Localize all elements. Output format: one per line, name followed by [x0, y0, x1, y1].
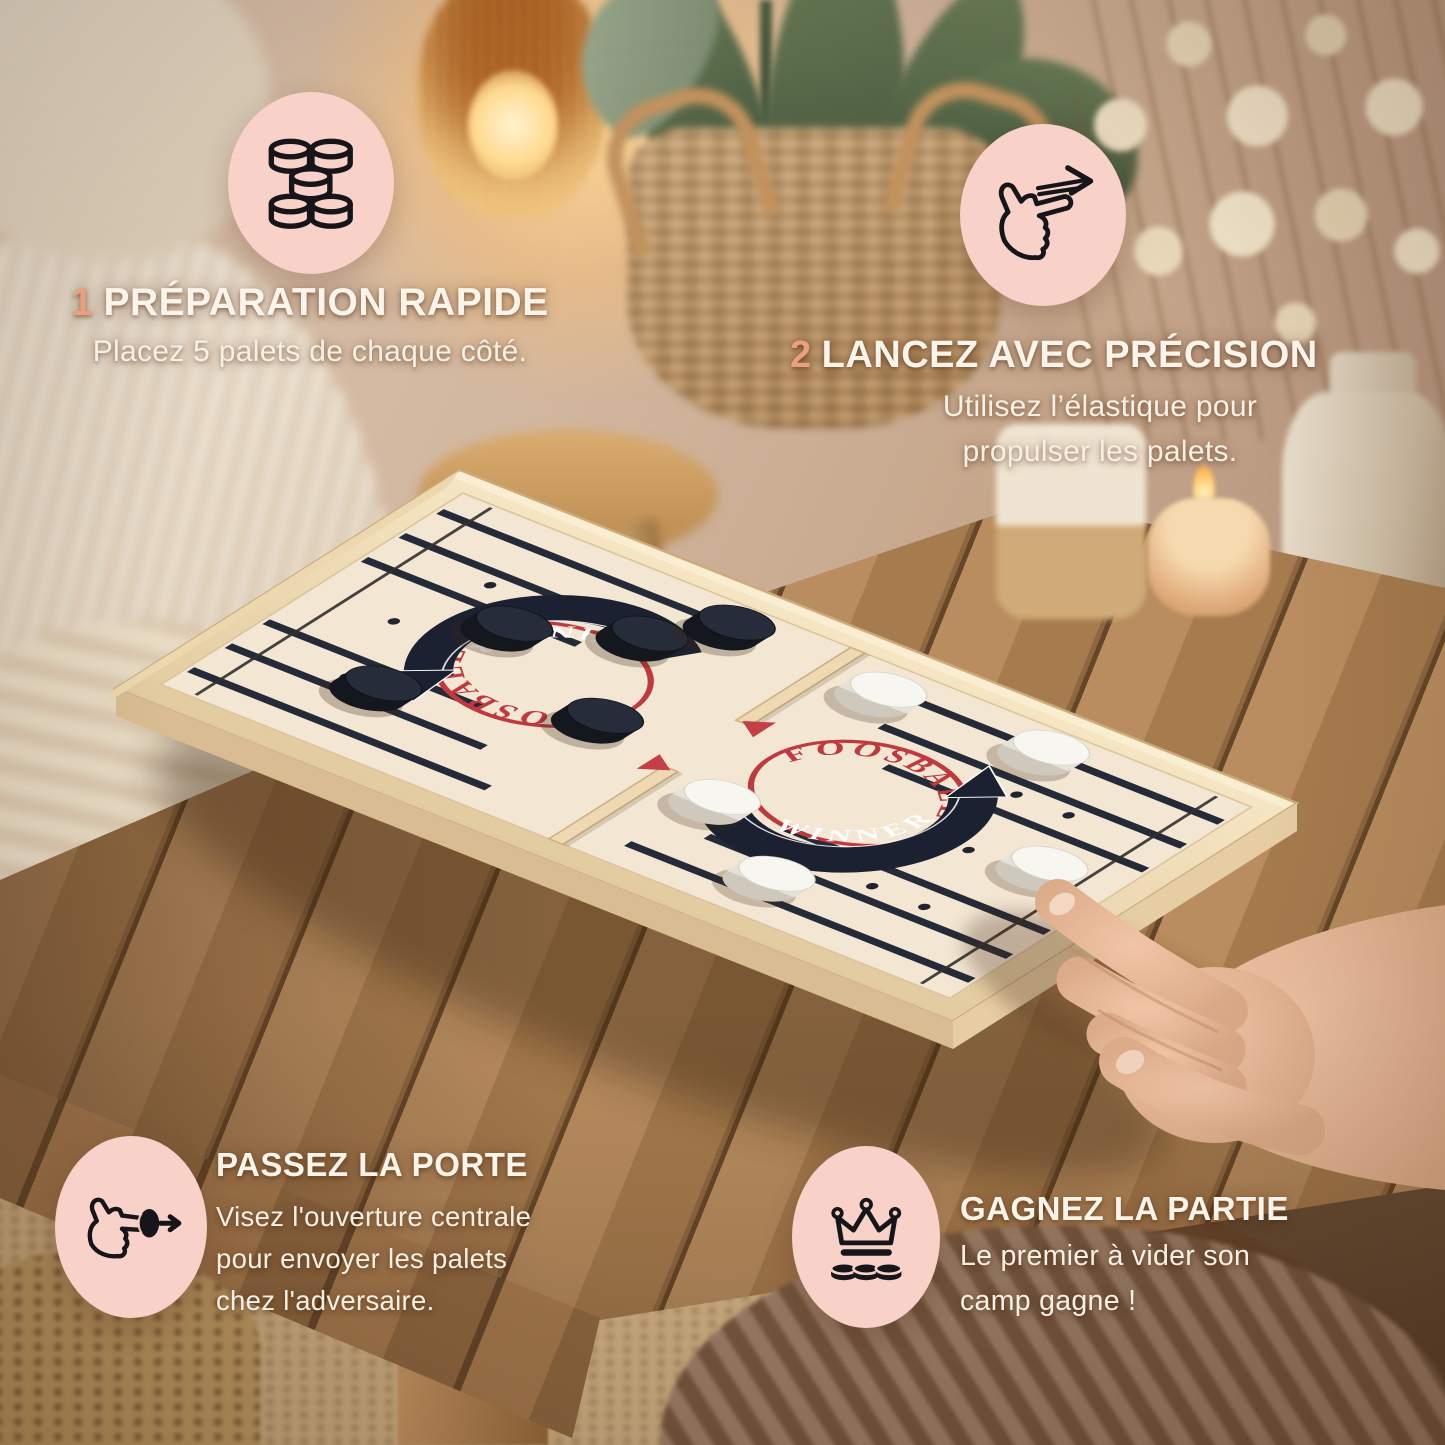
- callout-prep-title: 1PRÉPARATION RAPIDE: [35, 281, 585, 325]
- callout-launch-circle: [960, 124, 1126, 306]
- product-infographic: FOOSBALL WINNER FOOSBALL WINNER: [0, 0, 1445, 1445]
- callout-win-title: GAGNEZ LA PARTIE: [960, 1190, 1289, 1228]
- pucks-stack-icon: [251, 117, 371, 248]
- crown-pucks-icon: [813, 1171, 920, 1302]
- step-number: 2: [790, 334, 812, 376]
- callout-win-body: Le premier à vider son camp gagne !: [960, 1234, 1250, 1324]
- callout-prep-circle: [228, 92, 394, 274]
- flick-hand-icon: [983, 149, 1103, 280]
- callout-gate-circle: [55, 1136, 207, 1318]
- callout-launch-title: 2LANCEZ AVEC PRÉCISION: [790, 334, 1290, 377]
- callout-gate-body: Visez l'ouverture centrale pour envoyer …: [216, 1196, 531, 1322]
- callout-gate-title: PASSEZ LA PORTE: [216, 1146, 528, 1184]
- callout-launch-body: Utilisez l’élastique pour propulser les …: [850, 384, 1350, 474]
- callout-prep-body: Placez 5 palets de chaque côté.: [35, 335, 585, 369]
- callout-win-circle: [792, 1146, 940, 1328]
- flick-puck-icon: [76, 1161, 185, 1292]
- step-number: 1: [71, 281, 93, 324]
